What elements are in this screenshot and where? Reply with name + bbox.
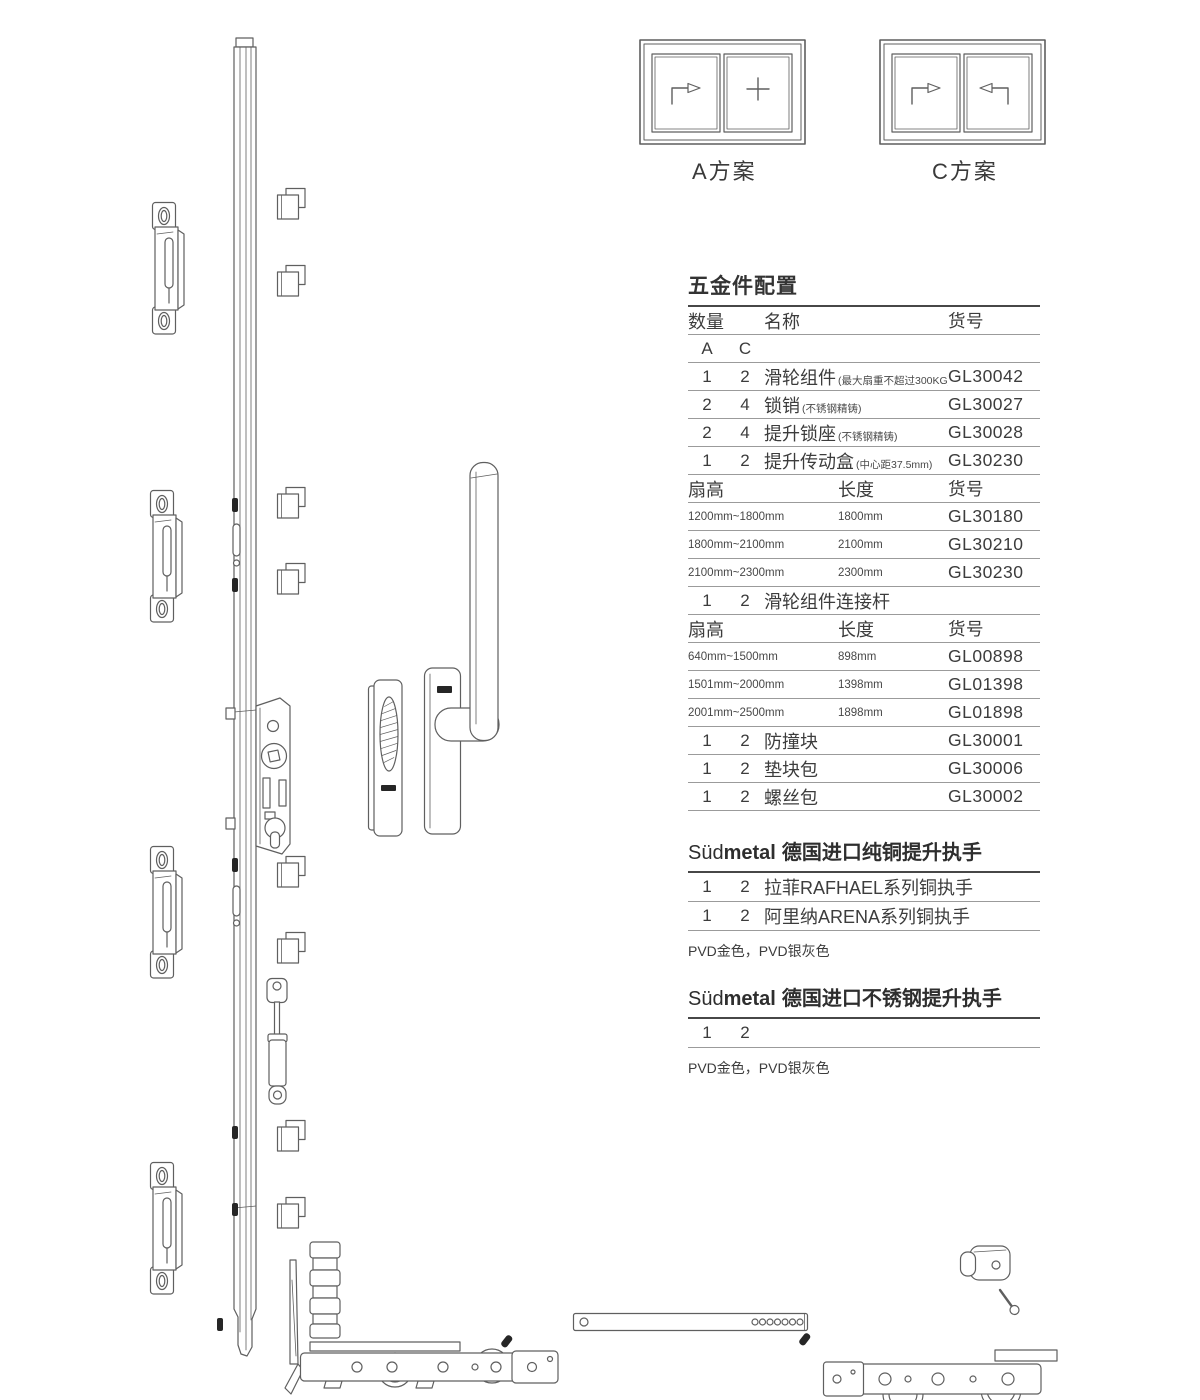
table-row: 1 2 拉菲RAFHAEL系列铜执手 <box>688 873 1040 902</box>
qty-c: 2 <box>726 1023 764 1043</box>
size-row: 2100mm~2300mm 2300mm GL30230 <box>688 559 1040 587</box>
lock-pin-block-diagram <box>278 266 306 297</box>
length: 1398mm <box>838 679 948 691</box>
part-code: GL30002 <box>948 786 1040 807</box>
flat-pull-handle-diagram <box>369 680 403 836</box>
part-name-text: 提升锁座 <box>764 420 836 446</box>
size-row: 640mm~1500mm 898mm GL00898 <box>688 643 1040 671</box>
part-name: 垫块包 <box>764 756 948 782</box>
qty-c: 2 <box>726 591 764 611</box>
part-name: 提升锁座(不锈钢精铸) <box>764 420 948 446</box>
part-note: (不锈钢精铸) <box>838 429 898 444</box>
part-name: 防撞块 <box>764 728 948 754</box>
qty-c: 2 <box>726 731 764 751</box>
qty-a: 1 <box>688 591 726 611</box>
col-code: 货号 <box>948 616 1040 641</box>
part-code: GL01898 <box>948 702 1040 723</box>
table-row: 1 2 <box>688 1019 1040 1048</box>
size-header-row: 扇高 长度 货号 <box>688 475 1040 503</box>
table-row: 1 2 螺丝包 GL30002 <box>688 783 1040 811</box>
qty-a: 1 <box>688 906 726 926</box>
part-name-text: 滑轮组件 <box>764 364 836 390</box>
size-row: 1200mm~1800mm 1800mm GL30180 <box>688 503 1040 531</box>
part-code: GL30028 <box>948 422 1040 443</box>
part-code: GL30027 <box>948 394 1040 415</box>
col-fan-height: 扇高 <box>688 616 838 642</box>
anti-collision-block-diagram <box>961 1246 1020 1315</box>
table-row: 1 2 滑轮组件连接杆 <box>688 587 1040 615</box>
part-name-text: 阿里纳ARENA系列铜执手 <box>764 903 970 929</box>
hardware-config-table: 五金件配置 数量 名称 货号 A C 1 2 滑轮组件(最大扇重不超过300KG… <box>688 270 1040 811</box>
table-row: 1 2 滑轮组件(最大扇重不超过300KG) GL30042 <box>688 363 1040 391</box>
lock-pin-block-diagram <box>278 189 306 220</box>
part-name: 提升传动盒(中心距37.5mm) <box>764 448 948 474</box>
keeper-plate-diagram <box>151 491 183 623</box>
connector-bar-diagram <box>574 1314 808 1331</box>
part-code: GL30042 <box>948 366 1040 387</box>
col-fan-height: 扇高 <box>688 476 838 502</box>
size-row: 2001mm~2500mm 1898mm GL01898 <box>688 699 1040 727</box>
col-qty: 数量 <box>688 308 764 334</box>
catalog-page: A方案 C方案 五金件配置 数量 名称 货号 A C 1 2 滑轮组件(最大扇重… <box>0 0 1200 1400</box>
qty-a: 1 <box>688 877 726 897</box>
table-row: 1 2 提升传动盒(中心距37.5mm) GL30230 <box>688 447 1040 475</box>
plan-a-window-diagram <box>640 40 805 144</box>
part-code: GL00898 <box>948 646 1040 667</box>
lock-pin-block-diagram <box>278 488 306 519</box>
length: 1898mm <box>838 707 948 719</box>
qty-c: 2 <box>726 367 764 387</box>
part-note: (不锈钢精铸) <box>802 401 862 416</box>
part-code: GL30180 <box>948 506 1040 527</box>
strut-diagram <box>267 979 287 1105</box>
section-title: Südmetal德国进口纯铜提升执手 <box>688 836 1040 873</box>
table-title: 五金件配置 <box>688 270 1040 307</box>
lock-pin-block-diagram <box>278 1121 306 1152</box>
part-code: GL01398 <box>948 674 1040 695</box>
part-name: 拉菲RAFHAEL系列铜执手 <box>764 874 1040 900</box>
corner-roller-assembly-diagram <box>285 1242 558 1394</box>
size-row: 1800mm~2100mm 2100mm GL30210 <box>688 531 1040 559</box>
finish-note: PVD金色，PVD银灰色 <box>688 941 1040 961</box>
qty-c: 2 <box>726 906 764 926</box>
section-title: Südmetal德国进口不锈钢提升执手 <box>688 982 1040 1019</box>
qty-c: 2 <box>726 759 764 779</box>
lift-handle-diagram <box>425 463 500 835</box>
qty-c: 2 <box>726 787 764 807</box>
steel-handle-section: Südmetal德国进口不锈钢提升执手 1 2 PVD金色，PVD银灰色 <box>688 982 1040 1078</box>
section-title-text: 德国进口不锈钢提升执手 <box>782 988 1002 1010</box>
fan-height: 1200mm~1800mm <box>688 511 838 523</box>
qty-c: 4 <box>726 423 764 443</box>
table-header-row: 数量 名称 货号 <box>688 307 1040 335</box>
variant-row: A C <box>688 335 1040 363</box>
lift-rail-diagram <box>217 38 256 1356</box>
part-note: (中心距37.5mm) <box>856 457 932 472</box>
keeper-plate-diagram <box>153 203 185 335</box>
part-name-text: 垫块包 <box>764 756 818 782</box>
variant-a: A <box>688 339 726 359</box>
part-code: GL30210 <box>948 534 1040 555</box>
col-length: 长度 <box>838 616 948 642</box>
qty-a: 1 <box>688 1023 726 1043</box>
size-row: 1501mm~2000mm 1398mm GL01398 <box>688 671 1040 699</box>
fan-height: 2001mm~2500mm <box>688 707 838 719</box>
part-name: 锁销(不锈钢精铸) <box>764 392 948 418</box>
part-name-text: 锁销 <box>764 392 800 418</box>
size-header-row: 扇高 长度 货号 <box>688 615 1040 643</box>
screw-diagram <box>1000 1290 1019 1315</box>
part-name: 滑轮组件连接杆 <box>764 588 948 614</box>
lock-pin-block-diagram <box>278 564 306 595</box>
table-row: 2 4 锁销(不锈钢精铸) GL30027 <box>688 391 1040 419</box>
part-code: GL30006 <box>948 758 1040 779</box>
fan-height: 2100mm~2300mm <box>688 567 838 579</box>
pin-diagram <box>798 1332 812 1347</box>
qty-a: 1 <box>688 367 726 387</box>
table-row: 1 2 防撞块 GL30001 <box>688 727 1040 755</box>
qty-c: 2 <box>726 877 764 897</box>
fan-height: 1800mm~2100mm <box>688 539 838 551</box>
part-code: GL30230 <box>948 562 1040 583</box>
qty-a: 1 <box>688 787 726 807</box>
col-code: 货号 <box>948 476 1040 501</box>
part-name-text: 提升传动盒 <box>764 448 854 474</box>
brand-sud: Süd <box>688 842 724 864</box>
qty-a: 1 <box>688 759 726 779</box>
part-name: 阿里纳ARENA系列铜执手 <box>764 903 1040 929</box>
variant-c: C <box>726 339 764 359</box>
roller-carriage-diagram <box>824 1350 1058 1400</box>
length: 2100mm <box>838 539 948 551</box>
part-code: GL30001 <box>948 730 1040 751</box>
finish-note: PVD金色，PVD银灰色 <box>688 1058 1040 1078</box>
part-name-text: 拉菲RAFHAEL系列铜执手 <box>764 874 973 900</box>
keeper-plate-diagram <box>151 847 183 979</box>
part-name: 滑轮组件(最大扇重不超过300KG) <box>764 364 948 390</box>
col-length: 长度 <box>838 476 948 502</box>
lock-pin-block-diagram <box>278 857 306 888</box>
qty-a: 2 <box>688 395 726 415</box>
qty-c: 4 <box>726 395 764 415</box>
section-title-text: 德国进口纯铜提升执手 <box>782 842 982 864</box>
length: 1800mm <box>838 511 948 523</box>
qty-c: 2 <box>726 451 764 471</box>
brass-handle-section: Südmetal德国进口纯铜提升执手 1 2 拉菲RAFHAEL系列铜执手 1 … <box>688 836 1040 961</box>
part-note: (最大扇重不超过300KG) <box>838 373 948 388</box>
qty-a: 1 <box>688 451 726 471</box>
length: 2300mm <box>838 567 948 579</box>
plan-c-label: C方案 <box>932 154 998 186</box>
qty-a: 1 <box>688 731 726 751</box>
part-code: GL30230 <box>948 450 1040 471</box>
col-code: 货号 <box>948 308 1040 333</box>
col-name: 名称 <box>764 308 948 334</box>
fan-height: 1501mm~2000mm <box>688 679 838 691</box>
plan-c-window-diagram <box>880 40 1045 144</box>
part-name: 螺丝包 <box>764 784 948 810</box>
table-row: 1 2 阿里纳ARENA系列铜执手 <box>688 902 1040 931</box>
plan-a-label: A方案 <box>692 154 757 186</box>
part-name-text: 滑轮组件连接杆 <box>764 588 890 614</box>
part-name-text: 螺丝包 <box>764 784 818 810</box>
part-name-text: 防撞块 <box>764 728 818 754</box>
table-row: 1 2 垫块包 GL30006 <box>688 755 1040 783</box>
table-row: 2 4 提升锁座(不锈钢精铸) GL30028 <box>688 419 1040 447</box>
brand-metal: metal <box>724 988 776 1010</box>
fan-height: 640mm~1500mm <box>688 651 838 663</box>
brand-metal: metal <box>724 842 776 864</box>
qty-a: 2 <box>688 423 726 443</box>
length: 898mm <box>838 651 948 663</box>
lock-pin-block-diagram <box>278 1198 306 1229</box>
lock-pin-block-diagram <box>278 933 306 964</box>
brand-sud: Süd <box>688 988 724 1010</box>
keeper-plate-diagram <box>151 1163 183 1295</box>
